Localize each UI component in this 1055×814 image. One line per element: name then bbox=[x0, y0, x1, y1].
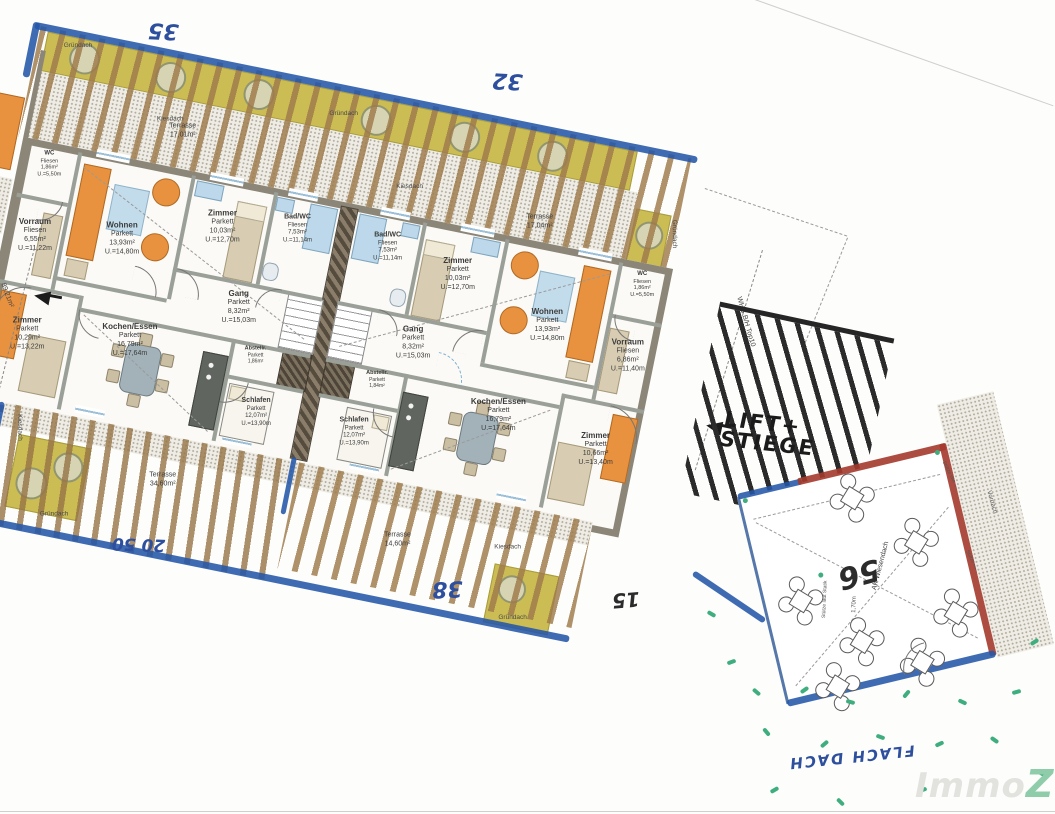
chair bbox=[463, 461, 478, 476]
watermark-z: Z bbox=[1026, 762, 1055, 806]
gruendach-label: Gründach bbox=[64, 42, 93, 49]
grass-mark bbox=[727, 659, 737, 666]
room-label-wohnen-right: Wohnen Parkett 13,93m² U.=14,80m bbox=[504, 307, 590, 343]
room-label-zimmer-bottom-left: Zimmer Parkett 10,29m² U.=13,22m bbox=[0, 316, 70, 352]
grass-mark bbox=[1012, 689, 1022, 695]
room-label-abstell-right: Abstellr. Parkett 1,84m² bbox=[334, 370, 420, 389]
survey-dot bbox=[742, 498, 748, 504]
room-label-wc-right: WC Fliesen 1,86m² U.=5,50m bbox=[599, 271, 685, 299]
grass-mark bbox=[762, 727, 771, 736]
grass-mark bbox=[752, 688, 761, 697]
handwritten-lift-stiege: LIFT+ STIEGE bbox=[718, 410, 821, 459]
grass-mark bbox=[935, 740, 945, 747]
watermark-immo: Immo bbox=[915, 766, 1026, 806]
room-label-zimmer-top-right: Zimmer Parkett 10,03m² U.=12,70m bbox=[415, 256, 501, 292]
projection-line bbox=[705, 188, 848, 237]
chair bbox=[154, 378, 169, 393]
room-label-wohnen-left: Wohnen Parkett 13,93m² U.=14,80m bbox=[79, 221, 165, 257]
gruendach-label: Gründach bbox=[40, 511, 69, 518]
handwritten-15: 15 bbox=[611, 587, 641, 613]
terrace-table bbox=[775, 576, 823, 624]
room-label-abstell-left: Abstellr. Parkett 1,86m² bbox=[212, 345, 298, 364]
terrace-table bbox=[827, 473, 875, 521]
room-label-gang-left: Gang Parkett 8,32m² U.=15,03m bbox=[196, 289, 282, 325]
chair bbox=[105, 368, 120, 383]
handwritten-35: 35 bbox=[147, 17, 179, 44]
stuetze-label: Stütze laut Statik bbox=[821, 580, 829, 618]
gruendach-label: Gründach bbox=[329, 110, 358, 117]
handwritten-flachdach: FLACH DACH bbox=[787, 741, 915, 772]
kiesdach-label: Kiesdach bbox=[494, 544, 521, 551]
grass-mark bbox=[770, 786, 780, 794]
duplex-building: Gründach Gründach Kiesdach Kiesdach Kies… bbox=[0, 30, 702, 655]
terrace-bottom-right-label: Terrasse 14,60m² bbox=[354, 532, 440, 550]
scan-line-top-right bbox=[752, 0, 1054, 106]
height-note-label: 1,70m bbox=[851, 596, 858, 613]
gruendach-label-vertical: Gründach bbox=[671, 220, 678, 249]
kiesdach-label-vertical: Kiesdach bbox=[16, 414, 23, 441]
handwritten-20-50: 20 50 bbox=[112, 533, 166, 555]
chair bbox=[491, 447, 506, 462]
room-label-zimmer-bottom-right: Zimmer Parkett 10,66m² U.=13,40m bbox=[553, 431, 639, 467]
room-label-gang-right: Gang Parkett 8,32m² U.=15,03m bbox=[370, 325, 456, 361]
terrace-bottom-left-label: Terrasse 34,60m² bbox=[120, 472, 206, 490]
room-label-zimmer-top-left: Zimmer Parkett 10,03m² U.=12,70m bbox=[179, 208, 265, 244]
terrace-table bbox=[931, 588, 979, 636]
handwritten-38: 38 bbox=[431, 575, 463, 602]
floorplan-scan: Gründach Gründach Kiesdach Kiesdach Kies… bbox=[0, 0, 1055, 814]
room-label-kochen-left: Kochen/Essen Parkett 16,79m² U.=17,64m bbox=[87, 322, 173, 358]
grass-mark bbox=[820, 740, 829, 749]
kiesdach-label: Kiesdach bbox=[396, 183, 423, 190]
scan-line-bottom bbox=[0, 811, 1055, 812]
handwritten-32: 32 bbox=[491, 67, 523, 94]
room-label-kochen-right: Kochen/Essen Parkett 16,79m² U.=17,64m bbox=[455, 397, 541, 433]
entry-arrow-left bbox=[33, 289, 51, 306]
grass-mark bbox=[876, 734, 886, 741]
terrace-top-left-label: Terrasse 17,01m² bbox=[140, 122, 226, 140]
survey-dot bbox=[934, 449, 940, 455]
chair bbox=[126, 393, 141, 408]
room-label-bad-left: Bad/WC Fliesen 7,53m² U.=11,14m bbox=[255, 213, 341, 244]
room-label-vorraum-right: Vorraum Fliesen 6,86m² U.=11,40m bbox=[585, 338, 671, 374]
terrace-table bbox=[837, 617, 885, 665]
grass-mark bbox=[958, 698, 968, 705]
blue-marker-connector bbox=[692, 570, 767, 623]
grass-mark bbox=[902, 689, 911, 698]
immoz-watermark: ImmoZ bbox=[915, 762, 1054, 806]
terrace-top-right-label: Terrasse 17,04m² bbox=[497, 213, 583, 231]
gruendach-label: Gründach bbox=[498, 614, 527, 621]
grass-mark bbox=[707, 610, 717, 618]
grass-mark bbox=[836, 797, 845, 806]
grass-mark bbox=[990, 736, 1000, 744]
room-label-schlafen-left: Schlafen Parkett 12,07m² U.=13,90m bbox=[213, 397, 299, 428]
room-label-schlafen-right: Schlafen Parkett 12,07m² U.=13,90m bbox=[311, 417, 397, 448]
survey-dot bbox=[818, 572, 824, 578]
